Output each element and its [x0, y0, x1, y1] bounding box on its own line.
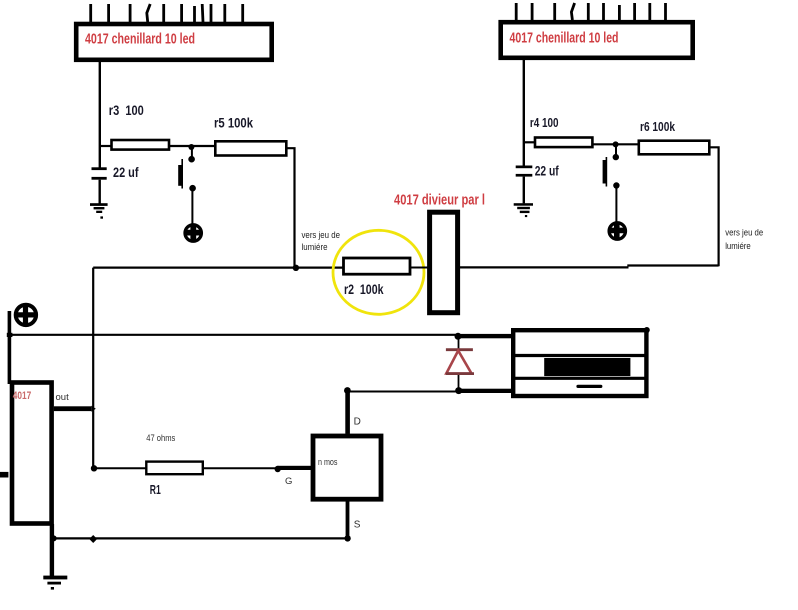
svg-text:r6 100k: r6 100k [640, 119, 676, 134]
svg-text:4017 divieur par l: 4017 divieur par l [394, 192, 485, 208]
svg-text:r4 100: r4 100 [530, 115, 559, 130]
svg-text:r2 100k: r2 100k [344, 281, 384, 297]
svg-text:4017 chenillard 10 led: 4017 chenillard 10 led [510, 30, 619, 47]
svg-text:D: D [354, 417, 361, 428]
svg-text:22 uf: 22 uf [535, 163, 559, 178]
svg-text:R1: R1 [150, 483, 161, 497]
svg-text:4017 chenillard 10 led: 4017 chenillard 10 led [85, 31, 195, 48]
svg-text:G: G [285, 476, 292, 487]
svg-text:out: out [56, 392, 70, 403]
svg-text:47 ohms: 47 ohms [146, 433, 175, 443]
svg-text:lumiére: lumiére [302, 242, 328, 252]
svg-text:vers jeu de: vers jeu de [725, 227, 763, 237]
svg-text:4017: 4017 [13, 390, 32, 402]
svg-text:n mos: n mos [318, 457, 338, 467]
svg-text:r3 100: r3 100 [109, 103, 144, 118]
svg-text:r5 100k: r5 100k [214, 116, 253, 131]
svg-text:lumiére: lumiére [725, 241, 751, 251]
svg-text:22 uf: 22 uf [113, 165, 139, 180]
svg-text:vers jeu de: vers jeu de [302, 230, 341, 240]
svg-text:S: S [354, 520, 361, 531]
